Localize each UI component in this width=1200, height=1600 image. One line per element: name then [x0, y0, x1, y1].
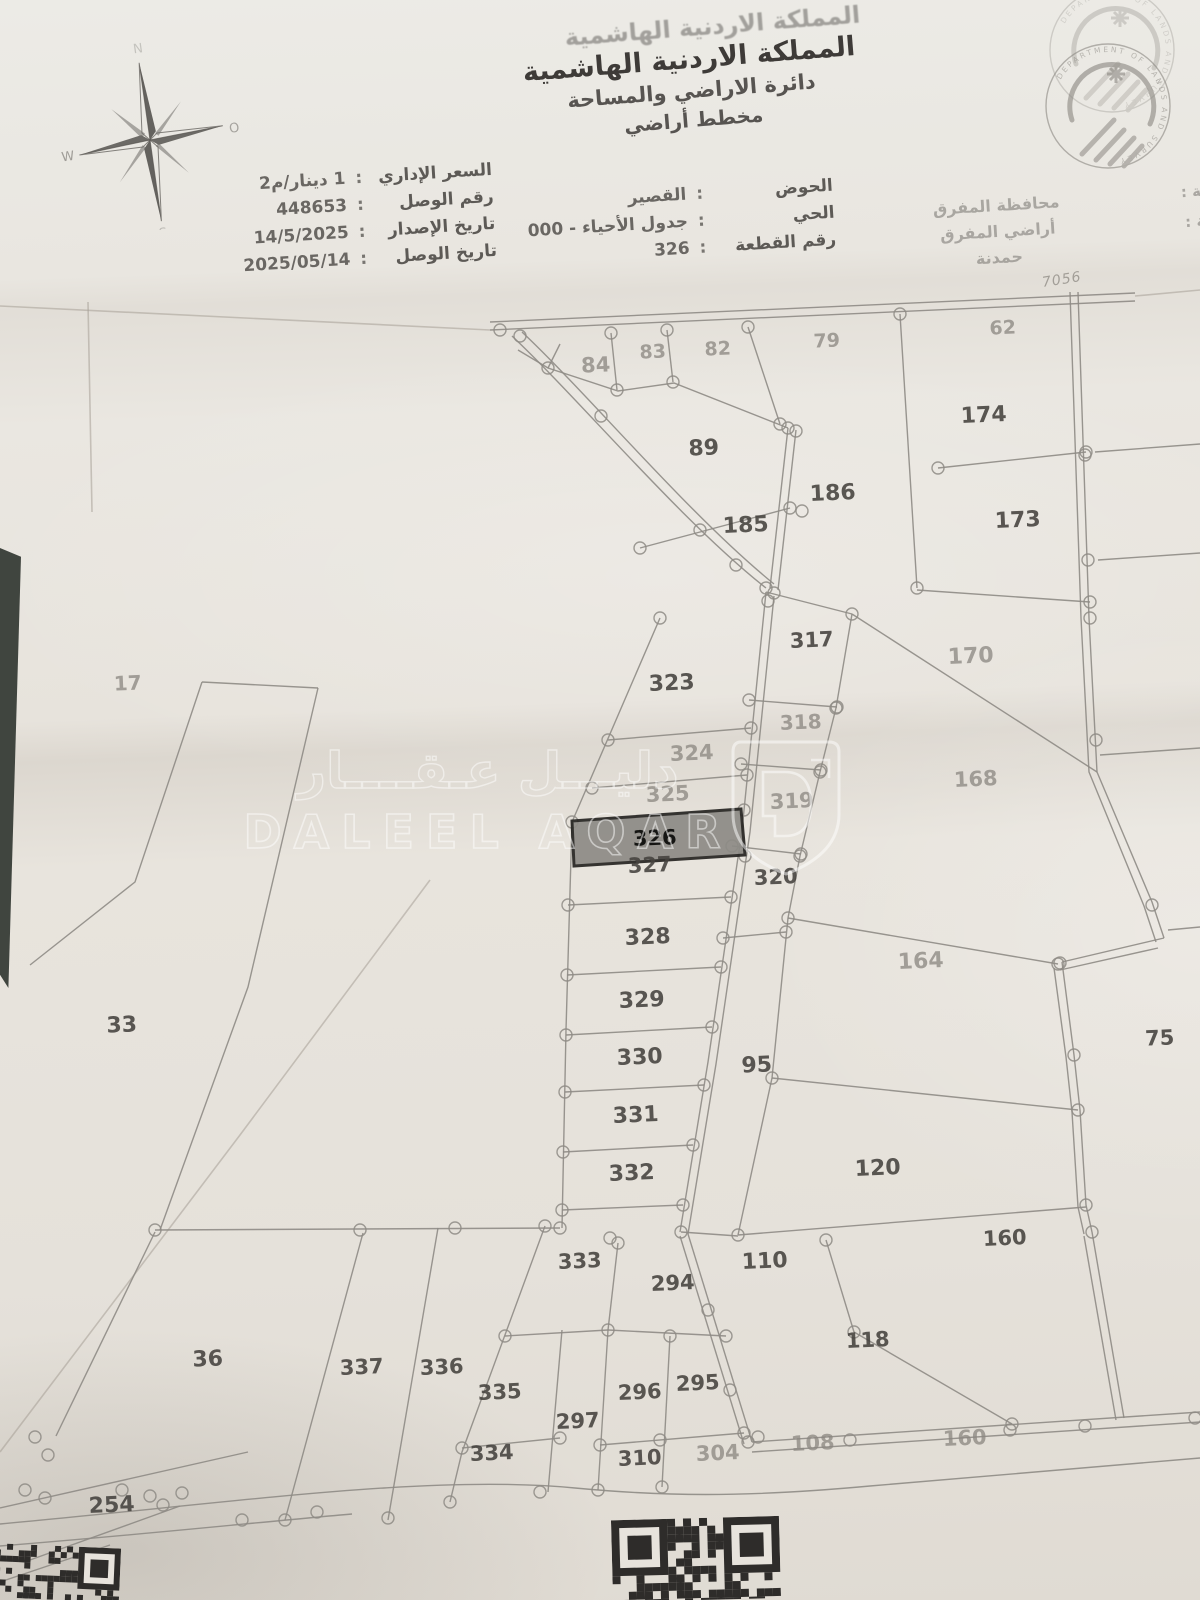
parcel-label-173: 173 — [994, 507, 1041, 534]
parcel-label-168: 168 — [953, 766, 998, 792]
parcel-label-330: 330 — [616, 1044, 663, 1071]
parcel-label-164: 164 — [897, 948, 944, 975]
parcel-label-79: 79 — [813, 329, 840, 352]
parcel-label-325: 325 — [645, 781, 690, 807]
parcel-boundary — [56, 1232, 155, 1436]
parcel-label-310: 310 — [617, 1445, 662, 1471]
parcel-boundary — [1092, 1232, 1124, 1418]
parcel-label-324: 324 — [669, 740, 714, 766]
parcel-boundary — [748, 327, 780, 424]
scanned-land-plan-photo: 3268483827962174891861851733171703233183… — [0, 0, 1200, 1600]
survey-point — [724, 1384, 736, 1396]
parcel-boundary — [680, 1236, 744, 1444]
svg-text:O: O — [228, 121, 240, 137]
parcel-label-highlight: 326 — [632, 825, 677, 851]
parcel-label-329: 329 — [618, 987, 665, 1014]
parcel-label-62: 62 — [989, 316, 1016, 339]
parcel-boundary — [202, 682, 318, 688]
parcel-boundary — [917, 590, 1090, 602]
separator: : — [358, 222, 366, 242]
parcel-label-317: 317 — [789, 627, 834, 653]
parcel-boundary — [567, 967, 721, 975]
survey-point — [157, 1499, 169, 1511]
parcel-label-296: 296 — [617, 1379, 662, 1405]
parcel-boundary — [826, 1240, 854, 1332]
parcel-label-75: 75 — [1145, 1025, 1175, 1050]
parcel-label-89: 89 — [688, 435, 720, 461]
survey-point — [311, 1506, 323, 1518]
parcel-boundary — [608, 728, 751, 740]
separator: : — [360, 249, 368, 269]
qr-pattern — [0, 1543, 121, 1600]
separator: : — [699, 238, 707, 258]
fold-crease — [1135, 290, 1200, 296]
info-label: تاريخ الوصل — [376, 241, 497, 268]
fold-crease — [88, 302, 92, 512]
separator: : — [355, 168, 363, 188]
survey-point — [176, 1487, 188, 1499]
parcel-label-185: 185 — [722, 512, 769, 539]
parcel-boundary — [568, 897, 731, 905]
qr-pattern — [611, 1516, 783, 1600]
info-value: جدول الأحياء - 000 — [527, 212, 688, 242]
parcel-boundary — [30, 682, 202, 965]
parcel-label-295: 295 — [675, 1370, 720, 1396]
survey-point — [534, 1486, 546, 1498]
parcel-label-334: 334 — [469, 1440, 514, 1466]
department-seal-icon: DEPARTMENT OF LANDS AND SURVEY DEPARTMEN… — [1008, 0, 1200, 210]
survey-point — [514, 330, 526, 342]
parcel-label-33: 33 — [106, 1012, 138, 1038]
parcel-boundary — [598, 1330, 608, 1490]
parcel-boundary — [608, 1243, 618, 1330]
parcel-label-304: 304 — [695, 1440, 740, 1466]
parcel-label-323: 323 — [648, 670, 695, 697]
parcel-label-297: 297 — [555, 1408, 600, 1434]
parcel-label-108: 108 — [790, 1430, 835, 1456]
parcel-boundary — [490, 301, 1135, 330]
survey-point — [144, 1490, 156, 1502]
parcel-label-170: 170 — [947, 643, 994, 670]
edge-label: القرية : — [1147, 238, 1200, 264]
qr-code — [611, 1516, 789, 1600]
parcel-label-331: 331 — [612, 1102, 659, 1129]
parcel-boundary — [490, 293, 1135, 322]
parcel-boundary — [723, 932, 786, 938]
parcel-label-335: 335 — [477, 1379, 522, 1405]
info-value: 14/5/2025 — [198, 223, 349, 252]
parcel-label-17: 17 — [113, 670, 142, 695]
parcel-label-110: 110 — [741, 1248, 788, 1275]
info-value: القصير — [627, 185, 687, 209]
survey-point — [1082, 554, 1094, 566]
parcel-boundary — [1100, 748, 1200, 755]
parcel-label-174: 174 — [960, 402, 1007, 429]
parcel-label-294: 294 — [650, 1270, 695, 1296]
parcel-boundary — [160, 688, 318, 1230]
survey-point — [29, 1431, 41, 1443]
info-label: تاريخ الإصدار — [375, 214, 496, 241]
parcel-label-95: 95 — [741, 1052, 773, 1078]
survey-point — [796, 505, 808, 517]
parcel-boundary — [1070, 292, 1156, 942]
svg-text:N: N — [132, 41, 144, 57]
info-value: 2025/05/14 — [200, 250, 351, 279]
parcel-boundary — [505, 1330, 608, 1336]
parcel-boundary — [611, 333, 617, 390]
survey-point — [19, 1484, 31, 1496]
parcel-label-336: 336 — [419, 1354, 464, 1380]
parcel-boundary — [1098, 553, 1200, 560]
separator: : — [356, 195, 364, 215]
parcel-boundary — [741, 764, 821, 770]
parcel-boundary — [662, 1336, 670, 1487]
parcel-boundary — [155, 1228, 560, 1230]
parcel-label-36: 36 — [192, 1346, 224, 1372]
fold-crease — [0, 306, 490, 330]
info-label: الحي — [714, 203, 835, 230]
parcel-boundary — [681, 1232, 738, 1236]
parcel-label-186: 186 — [809, 480, 856, 507]
survey-point — [730, 559, 742, 571]
parcel-label-333: 333 — [557, 1248, 602, 1274]
survey-point — [762, 595, 774, 607]
parcel-label-328: 328 — [624, 924, 671, 951]
parcel-label-332: 332 — [608, 1160, 655, 1187]
info-value: أراضي المفرق — [940, 219, 1056, 245]
survey-point — [702, 1304, 714, 1316]
parcel-boundary — [565, 1085, 704, 1092]
parcel-boundary — [738, 1207, 1086, 1235]
parcel-boundary — [667, 330, 673, 382]
parcel-boundary — [688, 596, 774, 1234]
parcel-label-82: 82 — [704, 337, 731, 360]
parcel-boundary — [1095, 444, 1200, 452]
parcel-label-319: 319 — [769, 788, 814, 814]
separator: : — [697, 211, 705, 231]
info-label: رقم القطعة — [716, 230, 837, 257]
parcel-label-318: 318 — [779, 709, 822, 735]
survey-point — [354, 1224, 366, 1236]
clipped-edge-labels: المنطقة :المديرية :القرية : — [1143, 178, 1200, 275]
parcel-label-160: 160 — [982, 1225, 1027, 1251]
info-value: 326 — [654, 239, 691, 261]
parcel-label-160: 160 — [942, 1425, 987, 1451]
parcel-boundary — [852, 614, 1097, 772]
parcel-boundary — [772, 1078, 1078, 1110]
survey-point — [595, 410, 607, 422]
info-value: حمدنة — [975, 247, 1023, 269]
info-label: رقم الوصل — [373, 187, 494, 214]
parcel-boundary — [562, 618, 660, 1228]
parcel-boundary — [1084, 1236, 1116, 1420]
survey-point — [1084, 612, 1096, 624]
parcel-label-337: 337 — [339, 1354, 384, 1380]
parcel-boundary — [938, 452, 1086, 468]
parcel-label-120: 120 — [854, 1155, 901, 1182]
parcel-label-327: 327 — [627, 852, 672, 878]
separator: : — [696, 184, 704, 204]
parcel-boundary — [1078, 292, 1164, 938]
edge-label: المديرية : — [1145, 208, 1200, 234]
svg-text:W: W — [61, 149, 76, 166]
parcel-boundary — [562, 1205, 683, 1210]
qr-code-partial — [0, 1543, 127, 1600]
survey-point — [42, 1449, 54, 1461]
parcel-label-118: 118 — [845, 1327, 890, 1353]
parcel-label-254: 254 — [88, 1492, 135, 1519]
parcel-label-83: 83 — [639, 340, 666, 363]
parcel-boundary — [770, 428, 788, 588]
parcel-boundary — [900, 314, 917, 588]
info-value: 448653 — [197, 196, 348, 225]
parcel-label-84: 84 — [581, 352, 611, 377]
parcel-boundary — [563, 1145, 693, 1152]
parcel-boundary — [566, 1027, 712, 1035]
parcel-boundary — [1168, 927, 1200, 930]
parcel-label-320: 320 — [753, 864, 798, 890]
